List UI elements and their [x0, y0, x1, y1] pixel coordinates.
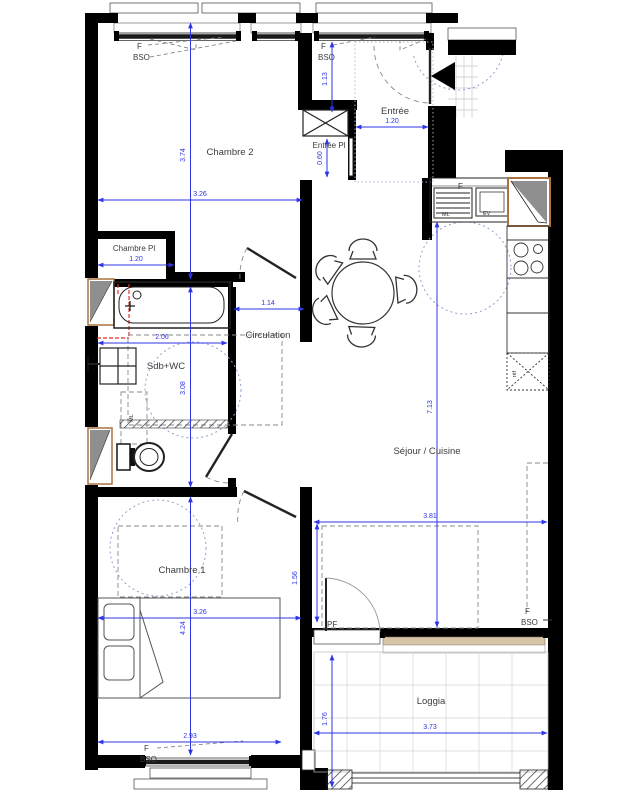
dim-entree-win-h: 1.13	[322, 72, 329, 86]
win-pf: PF	[327, 620, 337, 629]
floor-plan: 3.74 3.26 1.13 1.20 0.60 1.20 1.14 2.06 …	[0, 0, 638, 800]
door-sdb	[206, 434, 232, 477]
win-f-chambre1: F	[144, 744, 149, 753]
dim-sdb-h: 3.08	[180, 381, 187, 395]
win-bso-sejour: BSO	[521, 618, 538, 627]
dim-chambre2-h: 3.74	[180, 148, 187, 162]
dim-chambre1-h: 4.24	[180, 621, 187, 635]
dim-loggia-h: 1.76	[322, 712, 329, 726]
win-bso-chambre1: BSO	[140, 755, 157, 764]
dim-circulation-w: 1.14	[261, 300, 275, 307]
half-wall-hatch	[120, 420, 228, 428]
room-circulation: Circulation	[246, 330, 291, 341]
door-chambre1	[244, 491, 296, 517]
turning-circle-kitchen	[419, 222, 511, 314]
dim-entree-pl-d: 0.60	[317, 151, 324, 165]
dim-chambre2-w: 3.26	[193, 191, 207, 198]
kitchen-column	[507, 226, 549, 390]
closet-door	[349, 138, 353, 176]
dim-chambre1-w: 3.26	[193, 609, 207, 616]
dashed-zones	[118, 335, 548, 628]
kitchen-ev-label: EV	[483, 211, 491, 217]
turning-circle-bedroom1	[110, 500, 206, 596]
room-chambre1: Chambre 1	[159, 565, 206, 576]
loggia-floor	[314, 652, 548, 789]
room-sejour-cuisine: Séjour / Cuisine	[393, 446, 460, 457]
dim-entree-w: 1.20	[385, 118, 399, 125]
loggia-railing	[352, 773, 520, 783]
win-bso-entree: BSO	[318, 53, 335, 62]
room-sdb-wc: Sdb+WC	[147, 361, 185, 372]
toilet	[117, 443, 164, 471]
win-bso-topleft: BSO	[133, 53, 150, 62]
door-chambre2	[247, 248, 296, 278]
dim-sejour-h: 7.13	[427, 400, 434, 414]
dim-sejour-right: 1.56	[292, 571, 299, 585]
kitchen-f-label: F	[458, 182, 463, 191]
corner-cabinet	[508, 178, 550, 226]
win-f-sejour: F	[525, 607, 530, 616]
bathtub	[114, 282, 230, 328]
sdb-ml-label: ML	[129, 414, 135, 422]
dim-chambre-pl-w: 1.20	[129, 256, 143, 263]
win-f-entree: F	[321, 42, 326, 51]
bed	[98, 598, 280, 698]
floor-plan-page: 3.74 3.26 1.13 1.20 0.60 1.20 1.14 2.06 …	[0, 0, 638, 800]
room-labels: Chambre 2 Chambre Pl Sdb+WC Circulation …	[113, 106, 461, 707]
room-chambre2: Chambre 2	[207, 147, 254, 158]
dim-sejour-w: 3.81	[423, 513, 437, 520]
dim-loggia-w: 3.73	[423, 724, 437, 731]
window-annotations: F BSO F BSO F BSO F BSO PF	[133, 42, 538, 764]
dining-table	[308, 239, 418, 347]
cooktop	[507, 240, 549, 278]
room-entree-pl: Entrée Pl	[313, 141, 346, 150]
fridge-label: réf	[512, 370, 518, 377]
room-chambre-pl: Chambre Pl	[113, 244, 155, 253]
room-loggia: Loggia	[417, 696, 446, 707]
dimension-lines	[98, 23, 547, 787]
room-entree: Entrée	[381, 106, 409, 117]
kitchen-ml-label: ML	[442, 212, 450, 218]
dim-chambre1-south: 2.93	[183, 733, 197, 740]
win-f-topleft: F	[137, 42, 142, 51]
entry-arrow	[431, 62, 455, 90]
dim-sdb-w: 2.06	[155, 334, 169, 341]
